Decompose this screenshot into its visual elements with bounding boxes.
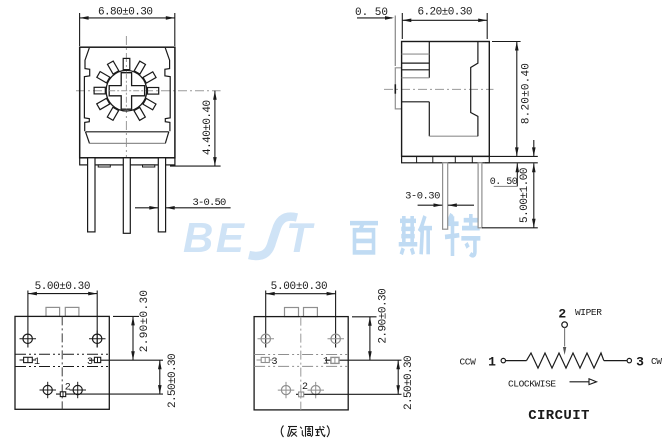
svg-text:4.40±0.40: 4.40±0.40: [202, 100, 214, 154]
svg-text:3-0.30: 3-0.30: [405, 190, 440, 202]
svg-text:2: 2: [302, 382, 308, 393]
svg-text:T: T: [286, 214, 315, 261]
svg-text:6.20±0.30: 6.20±0.30: [417, 7, 471, 19]
svg-text:5.00±0.30: 5.00±0.30: [271, 281, 328, 293]
svg-text:CW: CW: [651, 356, 662, 367]
svg-text:2: 2: [558, 307, 566, 322]
svg-text:3: 3: [272, 357, 278, 368]
svg-text:WIPER: WIPER: [575, 307, 602, 318]
svg-text:2.90±0.30: 2.90±0.30: [139, 290, 151, 353]
svg-text:1: 1: [34, 357, 40, 368]
svg-text:6.80±0.30: 6.80±0.30: [98, 7, 152, 19]
svg-text:2.90±0.30: 2.90±0.30: [378, 289, 390, 344]
svg-text:0. 50: 0. 50: [490, 177, 518, 188]
svg-text:CCW: CCW: [460, 357, 477, 368]
svg-text:5.00±1.00: 5.00±1.00: [519, 168, 531, 223]
svg-text:1: 1: [323, 357, 329, 368]
svg-text:1: 1: [488, 355, 496, 370]
svg-text:CIRCUIT: CIRCUIT: [528, 408, 590, 424]
svg-text:3: 3: [87, 357, 93, 368]
svg-text:8.20±0.40: 8.20±0.40: [521, 63, 533, 124]
svg-text:2.50±0.30: 2.50±0.30: [403, 356, 415, 410]
svg-text:BE: BE: [183, 214, 246, 261]
svg-text:3-0.50: 3-0.50: [192, 197, 226, 209]
svg-text:3: 3: [636, 355, 644, 370]
svg-text:2.50±0.30: 2.50±0.30: [167, 354, 179, 408]
svg-text:5.00±0.30: 5.00±0.30: [35, 281, 90, 293]
svg-text:CLOCKWISE: CLOCKWISE: [508, 379, 556, 390]
